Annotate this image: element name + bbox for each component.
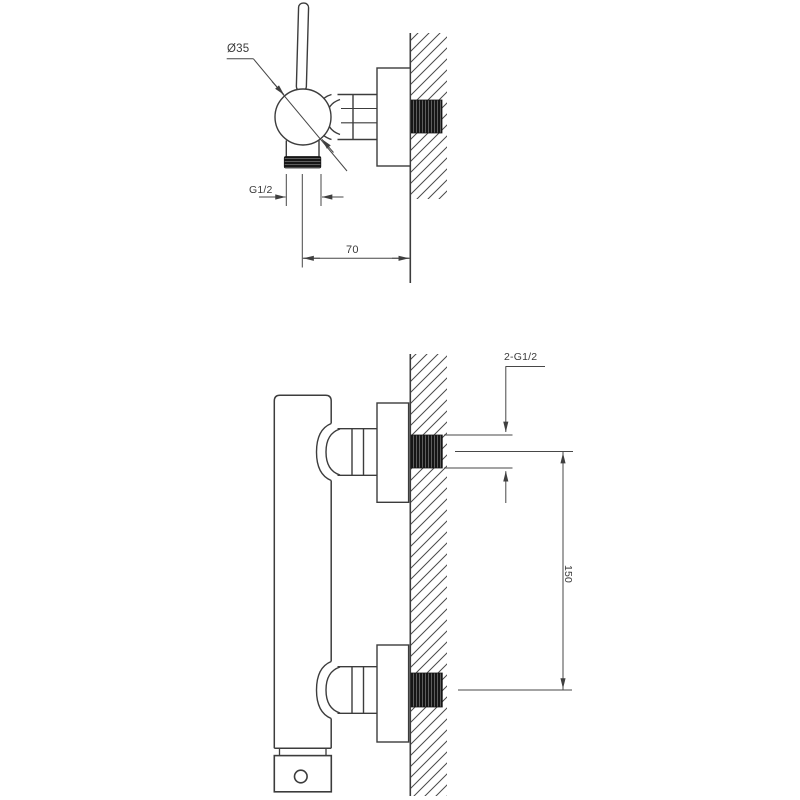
hose-outlet-port [295, 770, 308, 783]
mixer-body-fill [274, 395, 331, 748]
dim-inlet-spacing-label: 150 [561, 563, 573, 585]
threaded-inlet-lower [411, 673, 442, 707]
wall-flange-side [377, 68, 410, 166]
dim-body-diameter-label: Ø35 [227, 44, 249, 55]
wall-flange-lower [377, 645, 409, 742]
dim-inlet-spacing [458, 452, 572, 690]
dim-inlet-thread-label: 2-G1/2 [504, 352, 537, 363]
front-view [274, 354, 573, 796]
dim-inlet-thread [444, 367, 573, 504]
threaded-outlet [284, 157, 321, 169]
valve-body-circle [275, 89, 331, 145]
lever-handle [296, 3, 308, 91]
wall-hatch-front [411, 354, 447, 796]
outlet-block-neck [280, 748, 327, 755]
drawing-linework [0, 0, 800, 800]
technical-drawing-canvas: Ø35 G1/2 70 2-G1/2 150 [0, 0, 800, 800]
wall-flange-upper [377, 403, 409, 502]
dim-outlet-thread-label: G1/2 [249, 185, 273, 196]
threaded-inlet-upper [411, 435, 442, 468]
threaded-inlet-side [411, 100, 442, 133]
side-view [227, 3, 447, 283]
dim-wall-offset-label: 70 [346, 245, 359, 256]
